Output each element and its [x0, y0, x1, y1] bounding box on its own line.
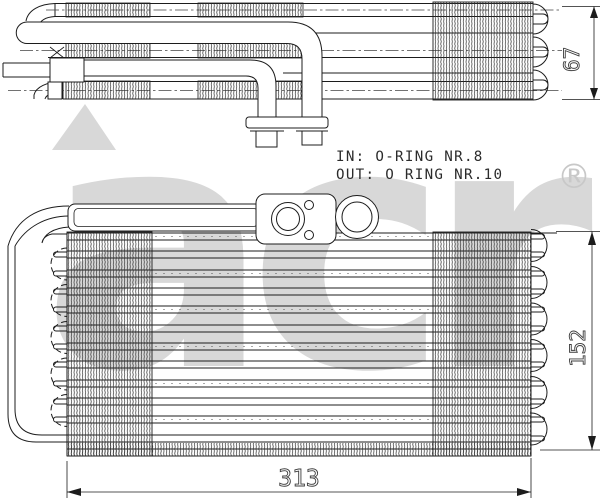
- header-bar: [68, 204, 262, 231]
- label-out: OUT: O RING NR.10: [336, 167, 503, 183]
- top-view-fins: [66, 2, 533, 100]
- bolt-hole-top: [305, 201, 314, 210]
- top-view-block-small: [48, 82, 62, 99]
- registered-mark: ®: [557, 157, 591, 197]
- top-view-block: [50, 58, 84, 82]
- bolt-hole-bottom: [305, 231, 314, 240]
- dimension-width: 313: [67, 458, 531, 498]
- top-view-stub-1: [256, 131, 277, 147]
- dimension-width-text: 313: [278, 466, 320, 492]
- dimension-depth-text: 67: [560, 47, 584, 72]
- drawing-page: acr ®: [0, 0, 602, 501]
- dimension-height-text: 152: [566, 329, 590, 367]
- technical-drawing: acr ®: [0, 0, 602, 501]
- top-view-stub-2: [302, 131, 322, 145]
- label-in: IN: O-RING NR.8: [336, 149, 484, 165]
- top-view-flange: [246, 117, 328, 128]
